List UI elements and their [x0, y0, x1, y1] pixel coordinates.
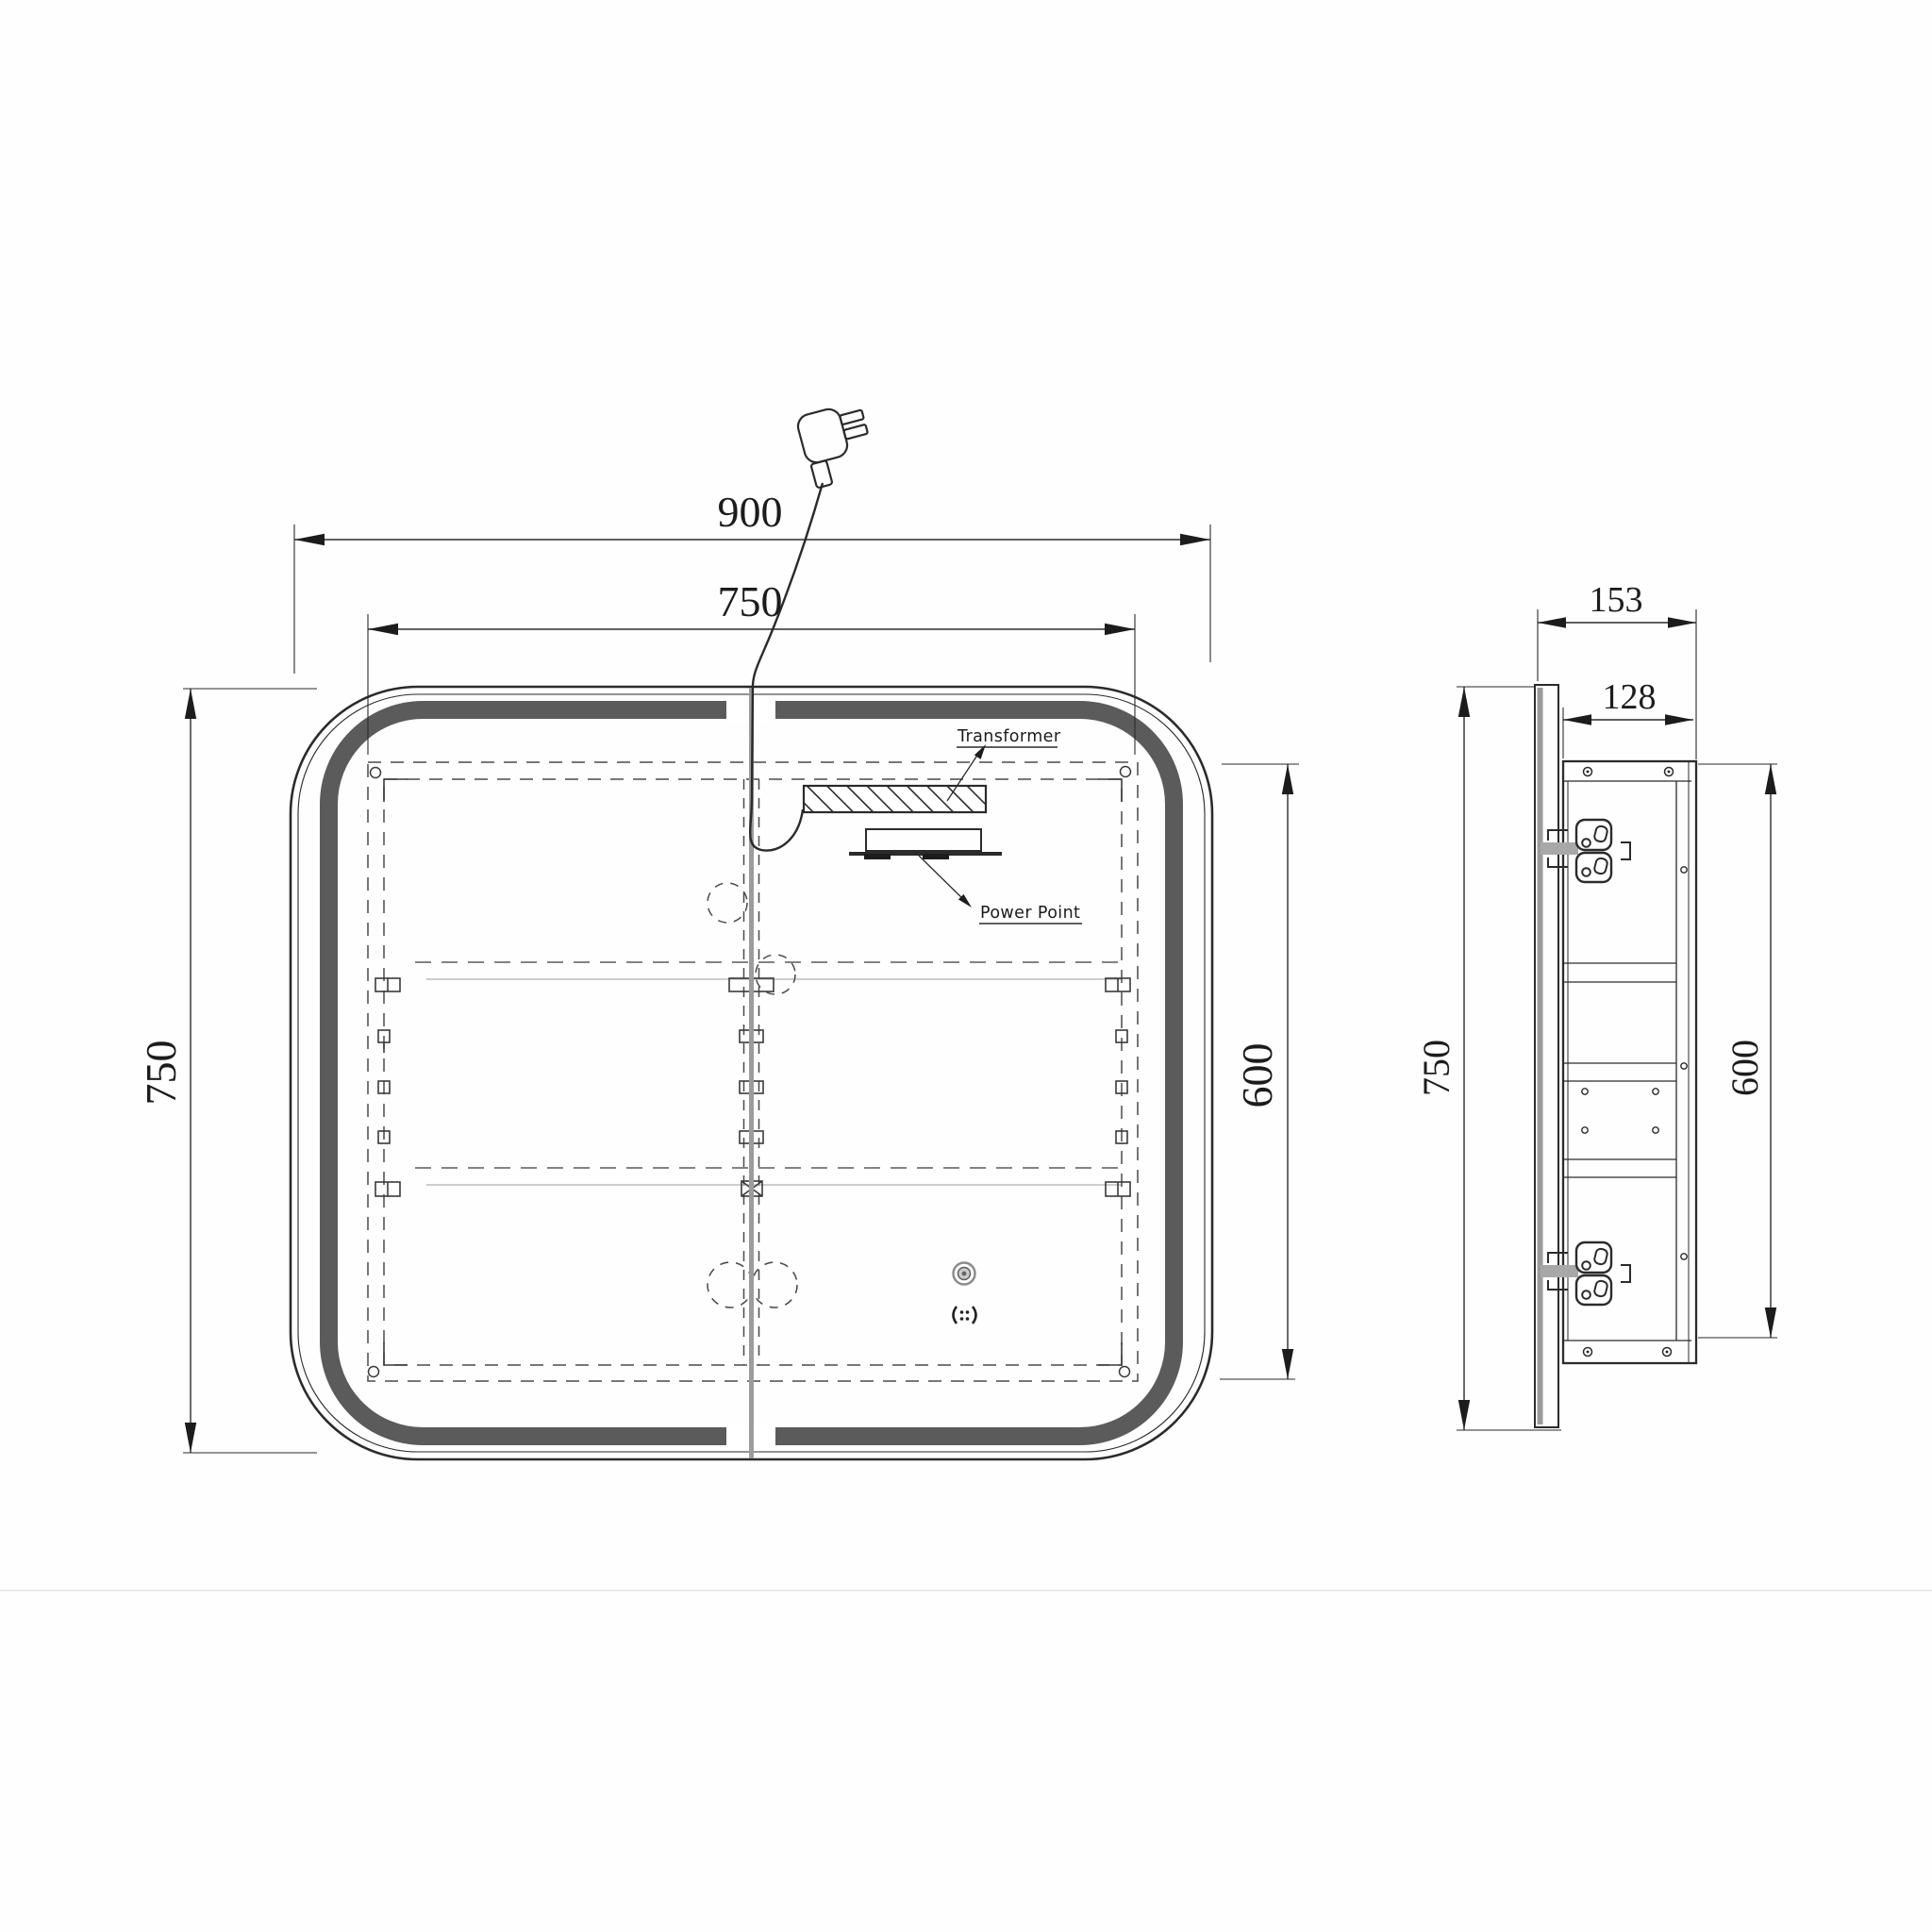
- drawing-canvas: 900 750 750 600 153 128 750 600 Transfor…: [0, 0, 1932, 1932]
- dim-side-cabinet-height-text: 600: [1724, 1040, 1766, 1096]
- side-shelf-dividers: [1563, 963, 1676, 1177]
- dim-cabinet-depth-text: 128: [1603, 677, 1657, 717]
- dim-overall-depth-text: 153: [1590, 580, 1643, 620]
- dim-side-overall-height: [1457, 687, 1561, 1430]
- dim-inner-height-text: 600: [1233, 1043, 1281, 1108]
- power-point-box: [849, 829, 1002, 859]
- side-view: [1457, 609, 1777, 1430]
- dim-side-overall-height-text: 750: [1415, 1040, 1457, 1096]
- defogger-icon: [954, 1307, 976, 1324]
- dim-inner-width-text: 750: [718, 577, 783, 625]
- power-point-label: Power Point: [980, 904, 1080, 923]
- technical-drawing: 900 750 750 600 153 128 750 600 Transfor…: [0, 0, 1932, 1932]
- back-panel-screws: [1681, 867, 1687, 1259]
- outlet-icon-bottom: [1541, 1242, 1630, 1305]
- plug-icon: [795, 401, 878, 489]
- dim-overall-width-text: 900: [718, 488, 783, 536]
- transformer-box: [804, 786, 986, 812]
- touch-sensor-icon: [954, 1263, 975, 1285]
- outlet-icon-top: [1541, 820, 1630, 882]
- front-view: [183, 401, 1299, 1459]
- compartment-screws: [1582, 1089, 1658, 1133]
- transformer-label: Transformer: [957, 727, 1061, 746]
- mirror-slab: [1535, 685, 1558, 1427]
- dim-overall-height: [183, 689, 317, 1453]
- dim-overall-height-text: 750: [137, 1041, 185, 1106]
